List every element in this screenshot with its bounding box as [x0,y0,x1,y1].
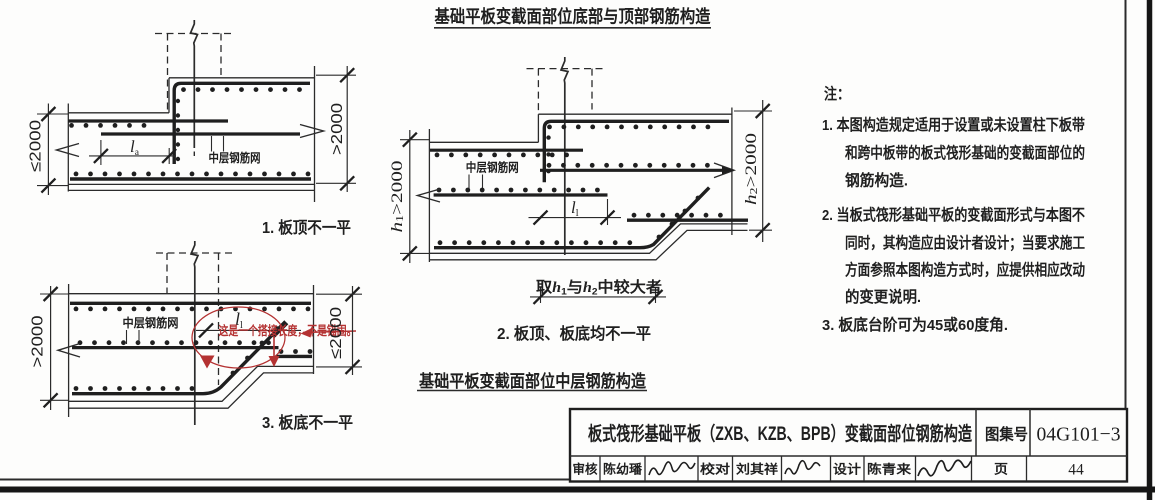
svg-text:图集号: 图集号 [985,425,1028,444]
svg-text:中层钢筋网: 中层钢筋网 [466,160,519,175]
svg-text:≤2000: ≤2000 [328,307,345,359]
svg-text:2. 当板式筏形基础平板的变截面形式与本图不: 2. 当板式筏形基础平板的变截面形式与本图不 [822,206,1085,224]
svg-text:方面参照本图构造方式时，应提供相应改动: 方面参照本图构造方式时，应提供相应改动 [845,261,1085,279]
svg-text:审核: 审核 [573,462,598,477]
svg-text:校对: 校对 [700,462,731,477]
svg-text:≤2000: ≤2000 [28,120,45,172]
svg-text:3. 板底不一平: 3. 板底不一平 [262,413,353,432]
svg-text:注：: 注： [824,84,850,103]
svg-text:04G101−3: 04G101−3 [1037,424,1121,446]
svg-text:44: 44 [1068,462,1084,479]
svg-text:陈幼璠: 陈幼璠 [603,462,643,477]
svg-text:>2000: >2000 [329,103,346,155]
svg-text:的变更说明.: 的变更说明. [845,288,921,306]
svg-text:基础平板变截面部位中层钢筋构造: 基础平板变截面部位中层钢筋构造 [418,371,647,391]
svg-text:陈青来: 陈青来 [867,462,912,477]
svg-text:钢筋构造.: 钢筋构造. [845,172,908,190]
svg-text:同时，其构造应由设计者设计；当要求施工: 同时，其构造应由设计者设计；当要求施工 [845,234,1085,252]
svg-text:和跨中板带的板式筏形基础的变截面部位的: 和跨中板带的板式筏形基础的变截面部位的 [845,144,1085,162]
svg-text:2. 板顶、板底均不一平: 2. 板顶、板底均不一平 [497,324,651,343]
svg-text:取h1与h2中较大者: 取h1与h2中较大者 [536,278,662,298]
svg-text:1. 本图构造规定适用于设置或未设置柱下板带: 1. 本图构造规定适用于设置或未设置柱下板带 [822,116,1085,134]
svg-text:页: 页 [994,462,1008,477]
svg-text:3. 板底台阶可为45或60度角.: 3. 板底台阶可为45或60度角. [822,316,1008,334]
svg-text:中层钢筋网: 中层钢筋网 [209,151,261,165]
svg-text:1. 板顶不一平: 1. 板顶不一平 [262,218,351,237]
svg-text:刘其祥: 刘其祥 [736,462,779,477]
svg-text:设计: 设计 [833,462,862,477]
svg-text:板式筏形基础平板（ZXB、KZB、BPB）变截面部位钢筋构造: 板式筏形基础平板（ZXB、KZB、BPB）变截面部位钢筋构造 [588,422,973,445]
svg-text:中层钢筋网: 中层钢筋网 [123,315,179,330]
svg-text:基础平板变截面部位底部与顶部钢筋构造: 基础平板变截面部位底部与顶部钢筋构造 [434,7,711,27]
svg-text:>2000: >2000 [30,315,47,367]
